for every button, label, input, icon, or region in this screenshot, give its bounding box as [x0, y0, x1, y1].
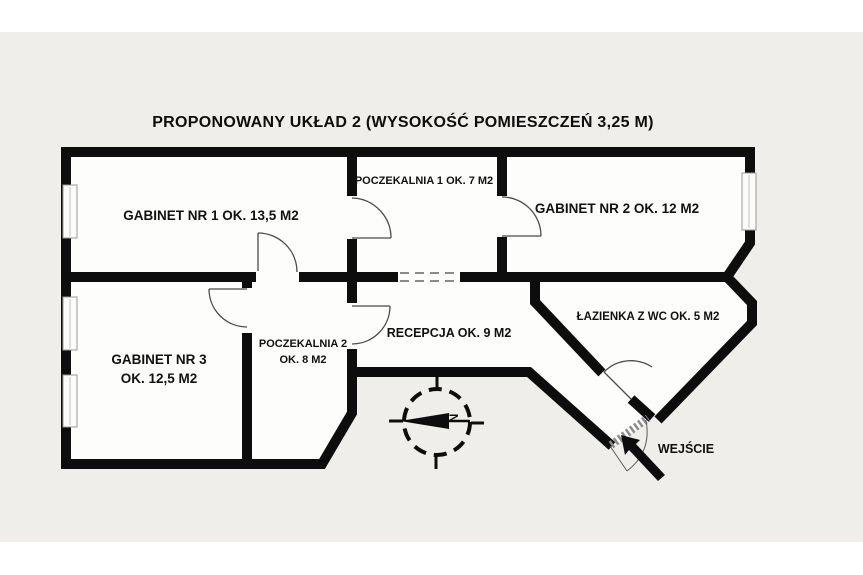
window-gabinet3-upper: [63, 297, 77, 350]
room-recepcja-label: RECEPCJA OK. 9 M2: [387, 326, 512, 340]
room-gabinet3-label-line2: OK. 12,5 M2: [121, 371, 198, 386]
room-poczekalnia2-label-line1: POCZEKALNIA 2: [259, 338, 347, 350]
room-bottom-left-floor: [66, 277, 352, 464]
window-gabinet3-lower: [63, 375, 77, 427]
room-poczekalnia2-label-line2: OK. 8 M2: [279, 354, 326, 366]
room-gabinet2-label: GABINET NR 2 OK. 12 M2: [535, 201, 699, 216]
room-poczekalnia1-label: POCZEKALNIA 1 OK. 7 M2: [355, 175, 493, 187]
door-gap-gabinet1: [256, 270, 299, 284]
room-gabinet3-label-line1: GABINET NR 3: [111, 352, 207, 367]
room-lazienka-label: ŁAZIENKA Z WC OK. 5 M2: [577, 311, 720, 323]
room-gabinet1-label: GABINET NR 1 OK. 13,5 M2: [123, 208, 299, 223]
floor-plan-canvas: PROPONOWANY UKŁAD 2 (WYSOKOŚĆ POMIESZCZE…: [0, 0, 863, 575]
plan-title: PROPONOWANY UKŁAD 2 (WYSOKOŚĆ POMIESZCZE…: [152, 112, 654, 131]
door-gap-gabinet2: [495, 196, 509, 237]
window-gabinet2: [742, 173, 756, 230]
compass-north-label: N: [447, 414, 461, 423]
floor-plan: PROPONOWANY UKŁAD 2 (WYSOKOŚĆ POMIESZCZE…: [0, 0, 863, 575]
entrance-label: WEJŚCIE: [658, 441, 714, 456]
door-gap-poczekalnia1-left: [345, 196, 359, 239]
window-gabinet1: [63, 185, 77, 238]
